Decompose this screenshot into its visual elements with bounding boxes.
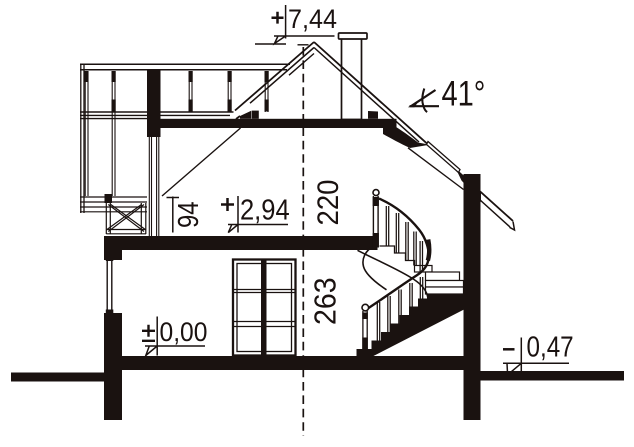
svg-text:263: 263	[308, 277, 342, 325]
svg-text:7,44: 7,44	[288, 5, 337, 34]
svg-text:94: 94	[172, 201, 204, 228]
svg-text:2,94: 2,94	[240, 193, 290, 226]
svg-text:0,47: 0,47	[527, 331, 574, 363]
svg-text:41°: 41°	[442, 74, 486, 113]
svg-text:0,00: 0,00	[160, 318, 208, 347]
svg-text:220: 220	[312, 179, 345, 225]
